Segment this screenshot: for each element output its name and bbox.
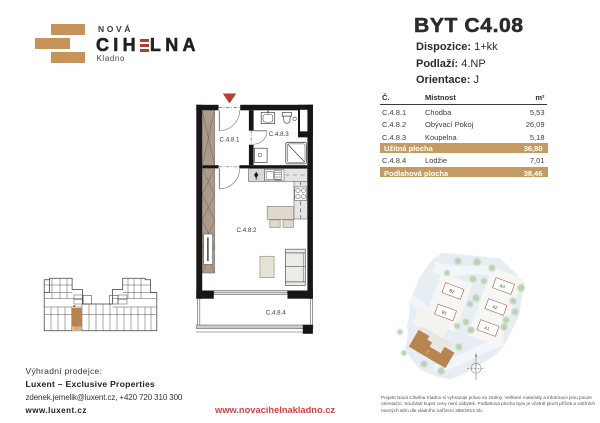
svg-text:C.4.8.2: C.4.8.2 xyxy=(237,227,258,234)
svg-text:C.4.8.3: C.4.8.3 xyxy=(269,131,290,138)
svg-text:C.4.8.4: C.4.8.4 xyxy=(266,310,287,317)
svg-text:C.4.8.1: C.4.8.1 xyxy=(220,137,241,144)
